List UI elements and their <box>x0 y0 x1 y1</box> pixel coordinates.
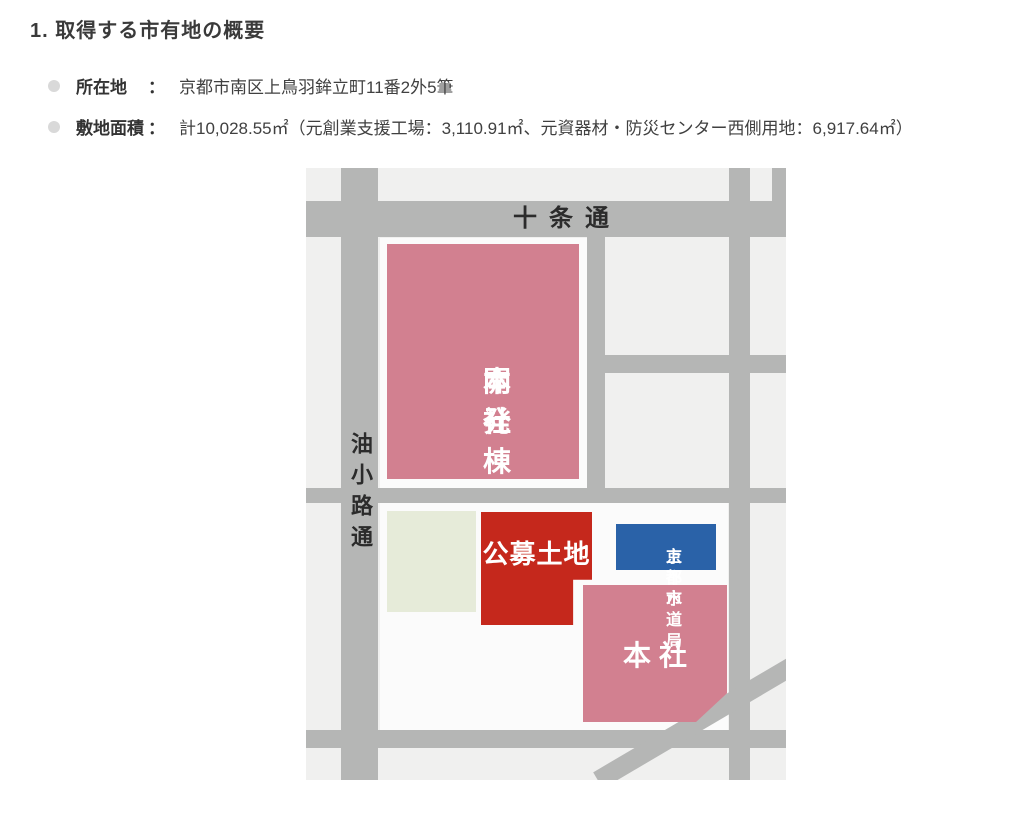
bullet-icon <box>48 121 60 133</box>
lot-public-offering-label: 公募土地 <box>482 534 590 571</box>
site-area-label: 敷地面積 <box>76 114 148 139</box>
label-line: 上下水道局 <box>666 547 682 652</box>
street-label-aburanokoji: 油小路通 <box>348 432 372 556</box>
location-value: 京都市南区上鳥羽鉾立町11番2外5筆 <box>179 73 454 98</box>
document-page: 1. 取得する市有地の概要 所在地 ： 京都市南区上鳥羽鉾立町11番2外5筆 敷… <box>0 0 1024 823</box>
location-label: 所在地 <box>76 73 148 98</box>
site-location-map: 十条通 油小路通 本社 開発棟 公募土地 京都市 上下水道局 本社 <box>306 168 786 780</box>
label-line: 開発棟 <box>483 362 517 482</box>
street-stub-top-right <box>772 168 786 205</box>
street-label-jujo: 十条通 <box>456 205 666 233</box>
detail-row-site-area: 敷地面積 ： 計10,028.55㎡（元創業支援工場：3,110.91㎡、元資器… <box>48 114 913 139</box>
street-vertical-middle <box>587 201 605 503</box>
site-area-separator: ： <box>148 114 165 139</box>
street-horizontal-lower <box>306 488 786 503</box>
street-horizontal-middle <box>587 355 786 373</box>
detail-row-location: 所在地 ： 京都市南区上鳥羽鉾立町11番2外5筆 <box>48 73 454 98</box>
building-head-office-label: 本社 <box>615 634 695 674</box>
page-title: 1. 取得する市有地の概要 <box>30 14 265 43</box>
bullet-icon <box>48 80 60 92</box>
label-waterworks-bureau: 京都市 上下水道局 <box>616 524 716 570</box>
site-area-value: 計10,028.55㎡（元創業支援工場：3,110.91㎡、元資器材・防災センタ… <box>179 114 913 139</box>
building-head-office-dev: 本社 開発棟 <box>387 244 579 479</box>
building-head-office: 本社 <box>583 585 727 722</box>
location-separator: ： <box>148 73 165 98</box>
street-horizontal-bottom <box>306 730 786 748</box>
lot-vacant <box>387 511 476 612</box>
